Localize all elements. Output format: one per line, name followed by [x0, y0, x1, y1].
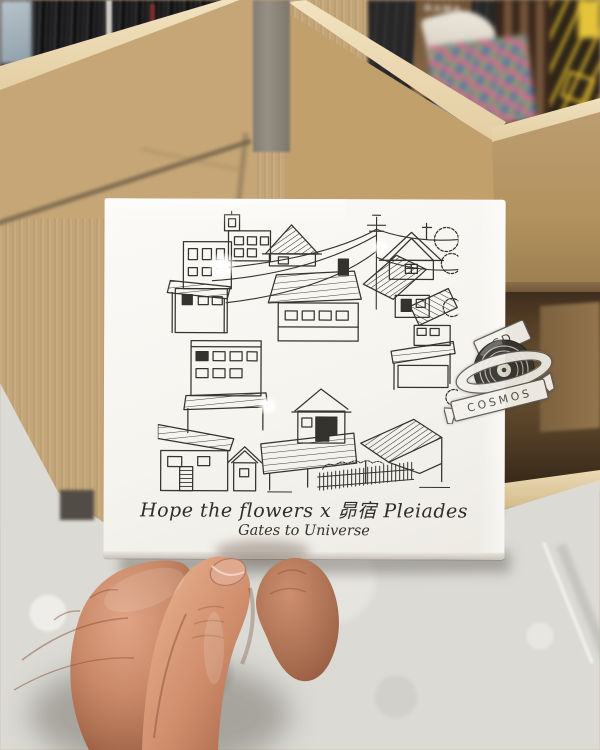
village-illustration [158, 210, 459, 493]
roof-corrugated-bottom [261, 417, 357, 490]
bin-foot [60, 490, 94, 520]
small-hut [228, 447, 262, 491]
concrete-pillar [253, 0, 290, 152]
plastic-glare [256, 397, 280, 415]
apartment-block [184, 341, 268, 433]
album-corner-yellow [578, 0, 600, 38]
index-finger [256, 558, 339, 681]
house-bottom-right [361, 419, 442, 483]
thumb-highlight [204, 612, 224, 684]
record-store-photo: RAMA [0, 0, 600, 750]
plastic-glare [370, 239, 392, 255]
star-icon [560, 70, 596, 106]
building-awning-left [167, 281, 230, 333]
plastic-glare [206, 253, 238, 279]
hand-holding-cd [0, 528, 364, 750]
house-bottom-left [158, 424, 234, 490]
plastic-sheen-top [105, 198, 346, 225]
cd-cosmos-watermark: CD COSMOS [444, 314, 556, 424]
house-gable-hatched [262, 225, 321, 266]
album-title: Hope the flowers x 昴宿 Pleiades [103, 495, 504, 523]
record-sleeve-blue [0, 0, 32, 64]
